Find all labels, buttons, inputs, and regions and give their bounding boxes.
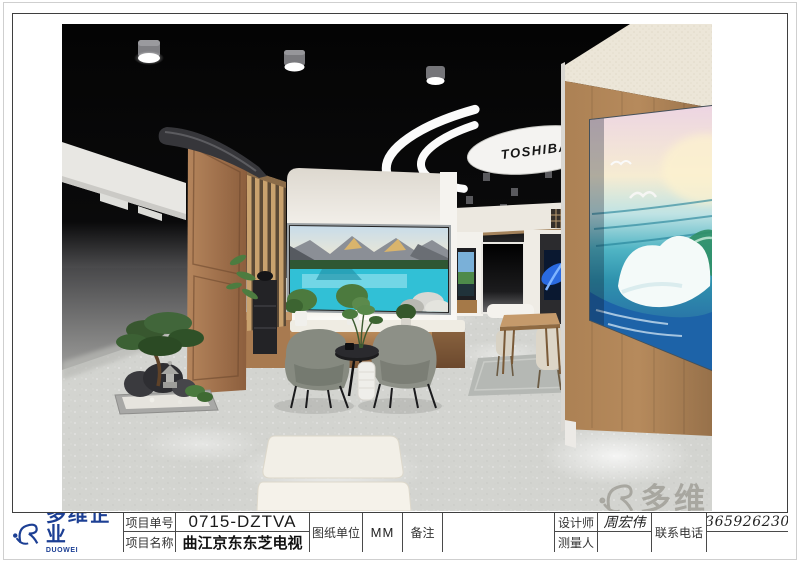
designer-label: 设计师 [558, 514, 594, 531]
surveyor-label-cell: 测量人 [555, 532, 598, 552]
company-name-en: DUOWEI ENTERPRISE [46, 547, 123, 553]
project-no-label: 项目单号 [125, 514, 173, 531]
drawing-sheet: TOSHIBA [0, 0, 800, 566]
phone-label: 联系电话 [655, 524, 703, 541]
surveyor-value-cell [598, 532, 652, 552]
remarks-label: 备注 [410, 524, 434, 541]
title-block: 多维企业 DUOWEI ENTERPRISE 项目单号 项目名称 0715-DZ… [12, 512, 788, 551]
doorway [481, 242, 525, 314]
project-name-label-cell: 项目名称 [124, 532, 176, 552]
company-watermark: 多维 [598, 474, 708, 511]
ottoman [257, 436, 411, 511]
remarks-value-cell [443, 513, 555, 552]
designer-label-cell: 设计师 [555, 513, 598, 532]
project-no-value: 0715-DZTVA [189, 513, 297, 532]
phone-value-cell: 13659262305 [707, 513, 788, 532]
small-display-tv [454, 248, 477, 313]
right-structure [561, 24, 712, 448]
project-no-label-cell: 项目单号 [124, 513, 176, 532]
drawing-unit-value: MM [371, 525, 395, 540]
project-name-value-cell: 曲江京东东芝电视 [176, 532, 310, 552]
project-name-value: 曲江京东东芝电视 [182, 532, 302, 552]
remarks-label-cell: 备注 [403, 513, 443, 552]
floor-vase [358, 362, 375, 400]
shrub-2 [197, 392, 213, 402]
showroom-rendering: TOSHIBA [62, 24, 712, 511]
phone-empty-cell [707, 532, 788, 552]
watermark-text: 多维 [640, 474, 708, 511]
surveyor-label: 测量人 [558, 534, 594, 551]
project-no-value-cell: 0715-DZTVA [176, 513, 310, 532]
drawing-unit-label: 图纸单位 [312, 524, 360, 541]
panel-edge [561, 62, 565, 432]
project-name-label: 项目名称 [125, 534, 173, 551]
showroom-scene-svg: TOSHIBA [62, 24, 712, 511]
watermark-logo-icon [598, 479, 638, 512]
company-logo-texts: 多维企业 DUOWEI ENTERPRISE [46, 513, 123, 552]
company-name-cn: 多维企业 [46, 513, 123, 545]
black-display-stand [253, 271, 277, 354]
phone-label-cell: 联系电话 [652, 513, 707, 552]
company-logo-icon [12, 518, 42, 548]
phone-value: 13659262305 [707, 514, 788, 530]
drawing-unit-label-cell: 图纸单位 [310, 513, 363, 552]
designer-value: 周宏伟 [604, 513, 646, 532]
panel-skirting [565, 420, 576, 448]
designer-value-cell: 周宏伟 [598, 513, 652, 532]
drawing-unit-value-cell: MM [363, 513, 403, 552]
company-logo-cell: 多维企业 DUOWEI ENTERPRISE [12, 513, 124, 552]
